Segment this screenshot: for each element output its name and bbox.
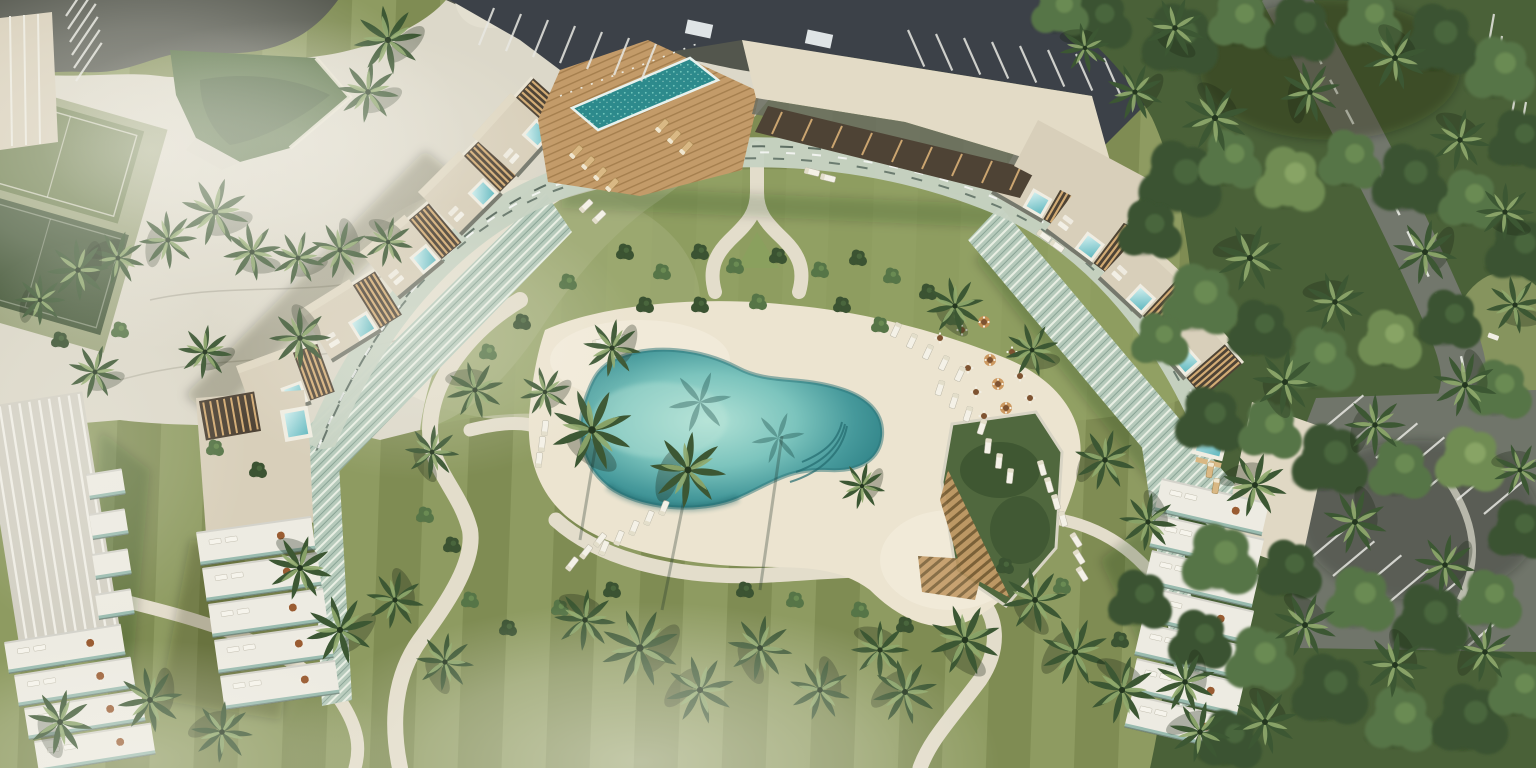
aerial-resort-render (0, 0, 1536, 768)
bar-table (1000, 402, 1012, 414)
sun-lounger (984, 438, 992, 454)
sun-lounger (995, 453, 1003, 469)
sun-lounger (1006, 468, 1014, 484)
bar-table (992, 378, 1004, 390)
bar-table (984, 354, 996, 366)
bar-table (978, 316, 990, 328)
render-canvas (0, 0, 1536, 768)
